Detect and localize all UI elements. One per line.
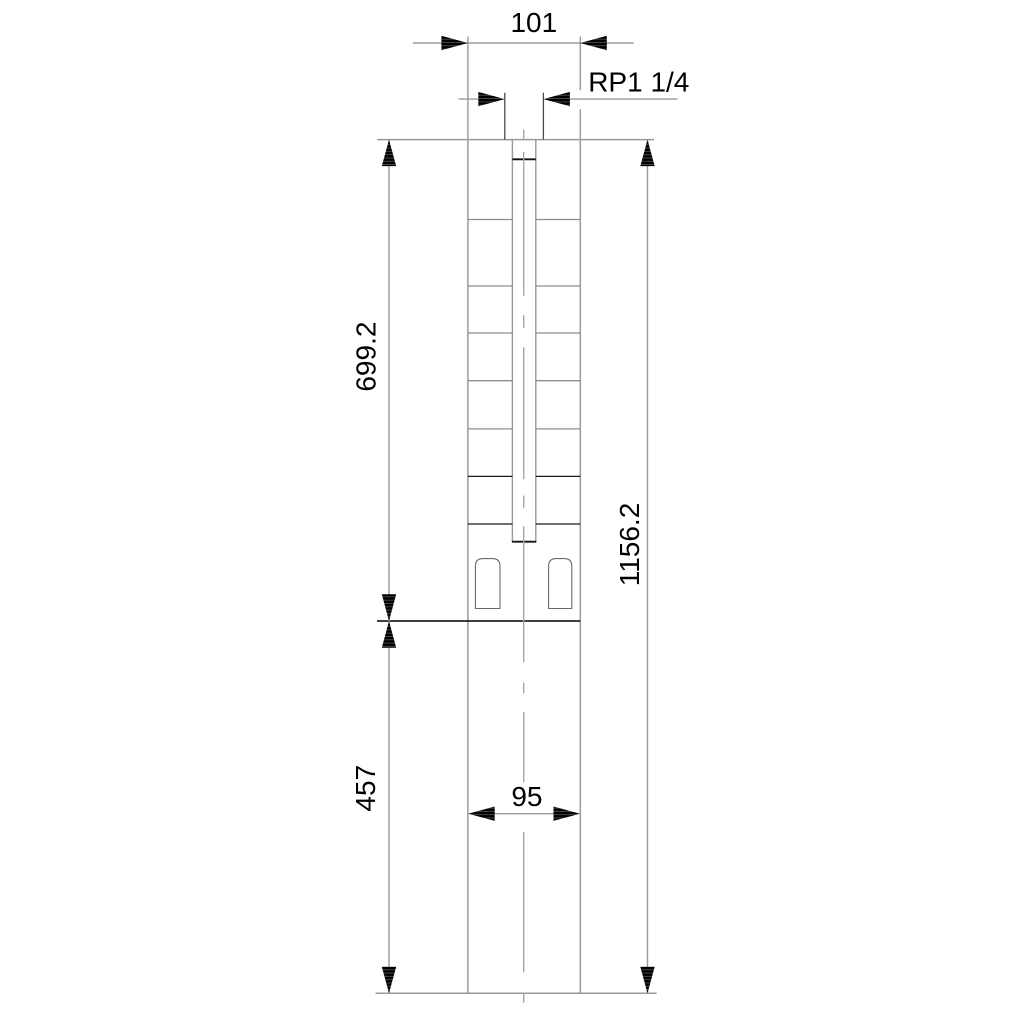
svg-text:457: 457: [350, 765, 381, 812]
svg-text:RP1 1/4: RP1 1/4: [588, 67, 689, 98]
svg-text:95: 95: [511, 781, 542, 812]
svg-text:1156.2: 1156.2: [614, 503, 645, 587]
svg-text:101: 101: [510, 7, 557, 38]
svg-text:699.2: 699.2: [351, 322, 382, 392]
